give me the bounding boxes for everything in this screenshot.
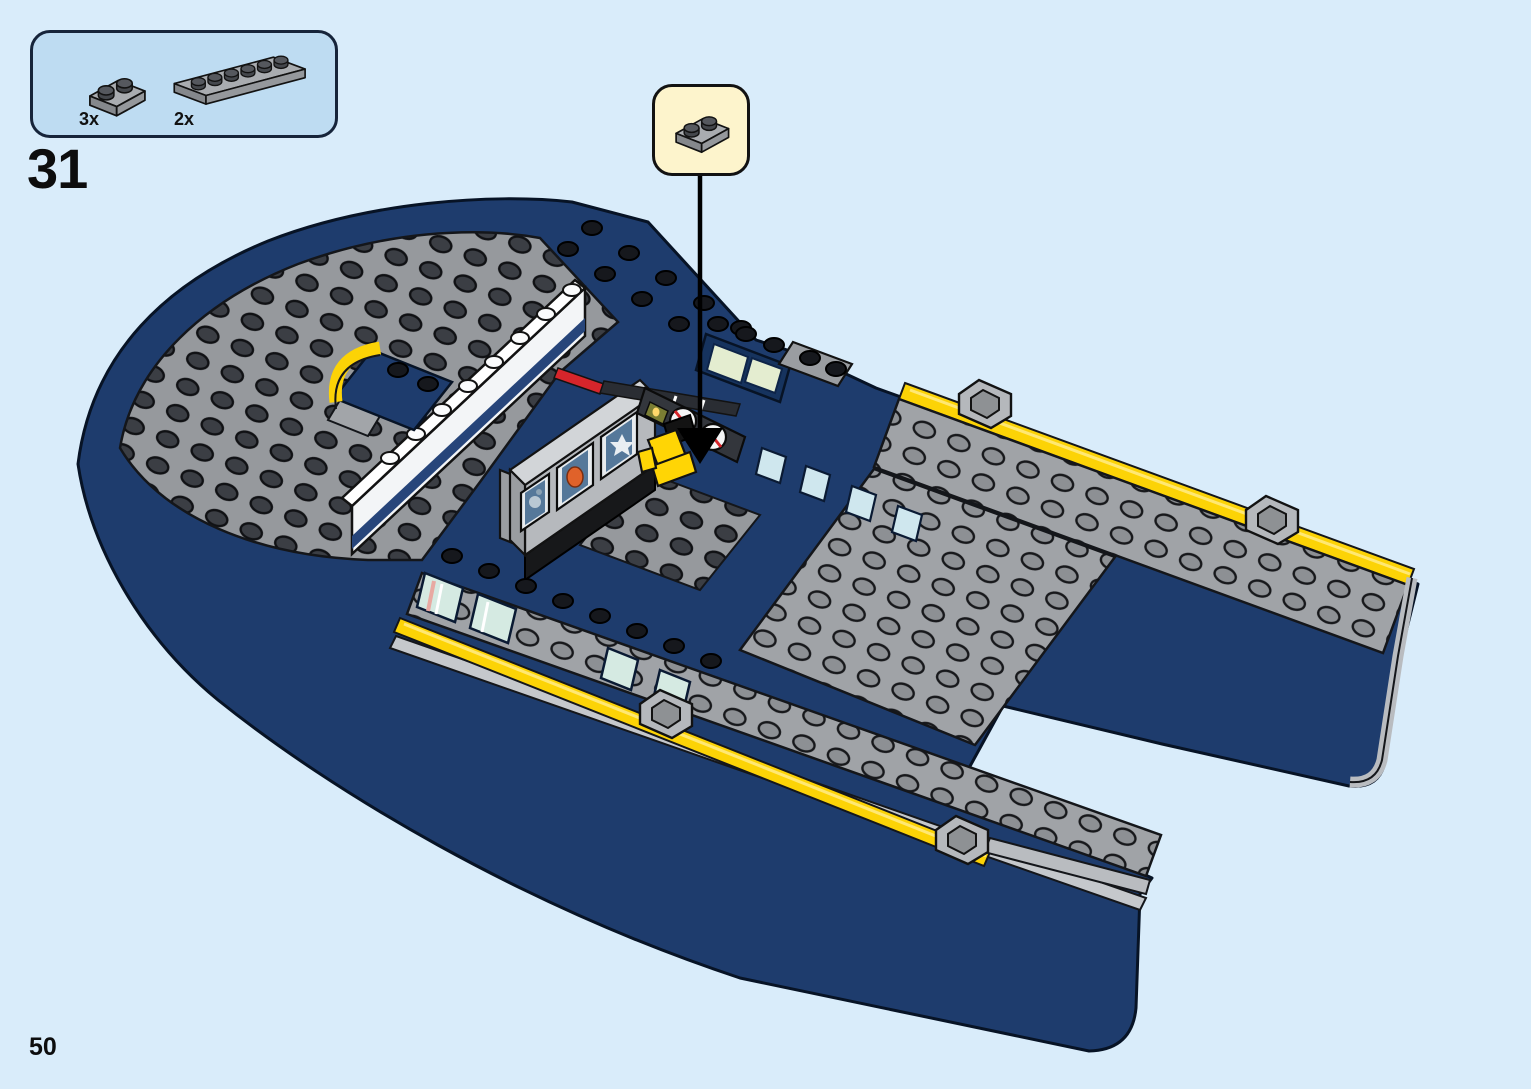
instruction-page: 3x 2x 31 50 [0, 0, 1531, 1089]
part-quantity: 3x [79, 109, 99, 130]
part-callout-bubble [652, 84, 750, 176]
part-plate-1x6-icon [165, 45, 317, 109]
callout-plate-1x2-icon [664, 103, 738, 157]
page-number: 50 [29, 1033, 57, 1062]
boat-illustration [0, 0, 1531, 1089]
step-number: 31 [27, 136, 87, 201]
part-quantity: 2x [174, 109, 194, 130]
parts-callout-box: 3x 2x [30, 30, 338, 138]
